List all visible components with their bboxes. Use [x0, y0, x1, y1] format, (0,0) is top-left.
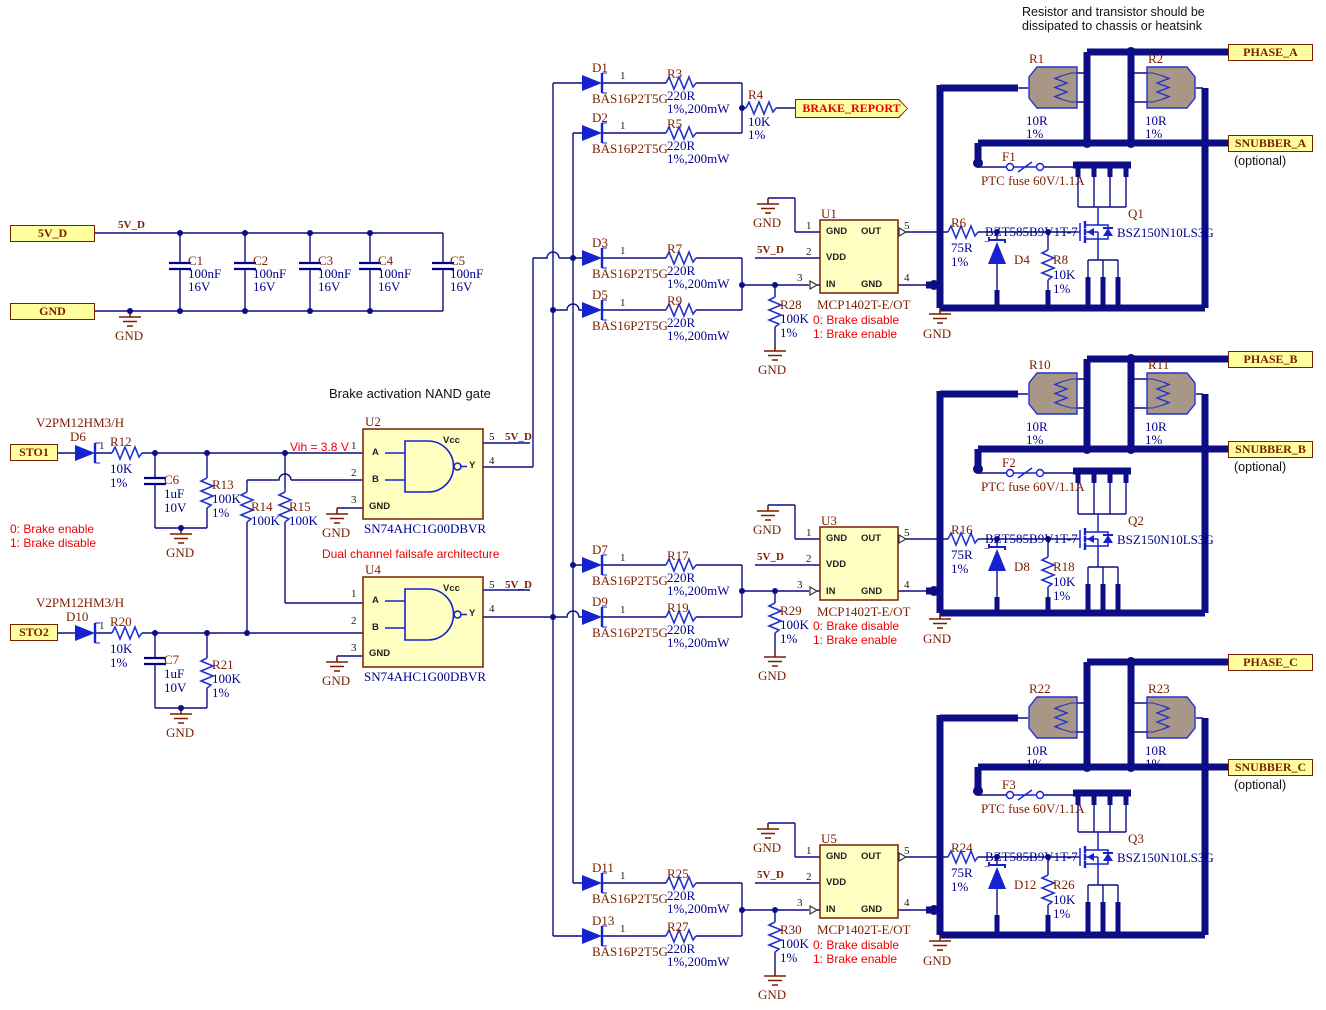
- vih-annotation: Vih = 3.8 V: [290, 440, 349, 454]
- U2-num5: 5: [489, 431, 495, 443]
- U1-pinGND1: GND: [826, 226, 847, 237]
- U3-num3: 3: [797, 579, 803, 591]
- junction-dot: [367, 230, 373, 236]
- R6-tol: 1%: [951, 254, 968, 270]
- junction-dot: [152, 450, 158, 456]
- U1-num3: 3: [797, 272, 803, 284]
- bus-junction-blob: [1082, 762, 1092, 772]
- mosfet-icon: [1074, 207, 1113, 257]
- bus-junction-blob: [973, 464, 983, 474]
- gnd-text-u2: GND: [322, 525, 350, 541]
- D8-part: BZT585B9V1T-7: [985, 531, 1078, 547]
- D9-pin1: 1: [620, 604, 626, 616]
- U4-num4: 4: [489, 603, 495, 615]
- bus-junction-blob: [1082, 138, 1092, 148]
- D1-pin1: 1: [620, 70, 626, 82]
- junction-dot: [178, 525, 184, 531]
- R18-tol: 1%: [1053, 588, 1070, 604]
- U2-num4: 4: [489, 455, 495, 467]
- U4-pinGND: GND: [369, 648, 390, 659]
- R16-tol: 1%: [951, 561, 968, 577]
- R24: R24: [951, 840, 973, 856]
- R8-tol: 1%: [1053, 281, 1070, 297]
- D11-part: BAS16P2T5G: [592, 891, 668, 907]
- D11: D11: [592, 860, 614, 876]
- port-phase-a: PHASE_A: [1228, 44, 1313, 61]
- U4-part: SN74AHC1G00DBVR: [364, 669, 486, 685]
- D12-minus: −: [984, 861, 990, 873]
- R30-tol: 1%: [780, 950, 797, 966]
- U3-num5: 5: [904, 527, 910, 539]
- nand-title: Brake activation NAND gate: [329, 386, 491, 401]
- D6-pin1: 1: [99, 440, 105, 452]
- net-5vd-u4: 5V_D: [505, 579, 532, 591]
- bus-junction-blob: [1126, 444, 1136, 454]
- D1: D1: [592, 60, 608, 76]
- gnd-text-r28: GND: [758, 362, 786, 378]
- brake-note-1: 1: Brake disable: [10, 536, 96, 550]
- bus-junction-blob: [1082, 444, 1092, 454]
- bus-junction-blob: [1126, 47, 1136, 57]
- Q2: Q2: [1128, 513, 1144, 529]
- R27-power: 1%,200mW: [667, 954, 729, 970]
- F2: F2: [1002, 455, 1016, 471]
- R21-tol: 1%: [212, 685, 229, 701]
- C1-voltage: 16V: [188, 279, 210, 295]
- R28-tol: 1%: [780, 325, 797, 341]
- junction-dot: [772, 282, 778, 288]
- R20-tol: 1%: [110, 655, 127, 671]
- net-5vd-u1: 5V_D: [757, 244, 784, 256]
- R13-tol: 1%: [212, 505, 229, 521]
- D1-part: BAS16P2T5G: [592, 91, 668, 107]
- arrow-icon: [810, 587, 817, 595]
- U4-pinVcc: Vcc: [443, 583, 460, 594]
- D3-part: BAS16P2T5G: [592, 266, 668, 282]
- gnd-icon: [764, 651, 786, 666]
- R22: R22: [1029, 681, 1051, 697]
- U2-num2: 2: [351, 467, 357, 479]
- F2-part: PTC fuse 60V/1.1A: [981, 479, 1085, 495]
- U4-num3: 3: [351, 642, 357, 654]
- U5-num2: 2: [806, 871, 812, 883]
- R17: R17: [667, 548, 689, 564]
- R24-tol: 1%: [951, 879, 968, 895]
- bus-junction-blob: [1200, 762, 1210, 772]
- junction-dot: [739, 105, 745, 111]
- port-brake-report: BRAKE_REPORT: [795, 99, 908, 118]
- U3-num2: 2: [806, 553, 812, 565]
- C7-voltage: 10V: [164, 680, 186, 696]
- powres-icon: [1029, 373, 1077, 414]
- C4-voltage: 16V: [378, 279, 400, 295]
- junction-dot: [739, 588, 745, 594]
- brake-disable-a0: 0: Brake disable: [813, 313, 899, 327]
- port-sto1: STO1: [10, 444, 58, 461]
- junction-dot: [739, 282, 745, 288]
- R4: R4: [748, 87, 763, 103]
- zener-icon: [988, 544, 1006, 571]
- powres-icon: [1147, 373, 1195, 414]
- junction-dot: [307, 230, 313, 236]
- gnd-text-c7: GND: [166, 725, 194, 741]
- junction-dot: [307, 308, 313, 314]
- R5-power: 1%,200mW: [667, 151, 729, 167]
- R12: R12: [110, 434, 132, 450]
- zener-icon: [988, 862, 1006, 889]
- U2-pinY: Y: [469, 460, 475, 471]
- D12-part: BZT585B9V1T-7: [985, 849, 1078, 865]
- gnd-text-r30: GND: [758, 987, 786, 1003]
- gnd-text-u4: GND: [322, 673, 350, 689]
- F3: F3: [1002, 777, 1016, 793]
- gnd-text-busb: GND: [923, 631, 951, 647]
- mosfet-icon: [1074, 832, 1113, 882]
- U2-pinA: A: [372, 447, 379, 458]
- R11: R11: [1148, 357, 1169, 373]
- U1-part: MCP1402T-E/OT: [817, 297, 910, 313]
- U2-pinVcc: Vcc: [443, 435, 460, 446]
- D2-pin1: 1: [620, 120, 626, 132]
- gnd-text-u5pin1: GND: [753, 840, 781, 856]
- bus-junction-blob: [1126, 354, 1136, 364]
- R2: R2: [1148, 51, 1163, 67]
- D10-pin1: 1: [99, 620, 105, 632]
- R2-tol: 1%: [1145, 126, 1162, 142]
- U3-part: MCP1402T-E/OT: [817, 604, 910, 620]
- junction-dot: [242, 230, 248, 236]
- cap-icon: [144, 478, 166, 484]
- R26: R26: [1053, 877, 1075, 893]
- brake-disable-c0: 0: Brake disable: [813, 938, 899, 952]
- bus-junction-blob: [1126, 762, 1136, 772]
- D7-pin1: 1: [620, 552, 626, 564]
- D3-pin1: 1: [620, 245, 626, 257]
- port-snubber-b: SNUBBER_B: [1228, 441, 1313, 458]
- powres-icon: [1147, 67, 1195, 108]
- C3-voltage: 16V: [318, 279, 340, 295]
- junction-dot: [772, 907, 778, 913]
- net-5vd-u3: 5V_D: [757, 551, 784, 563]
- R25-power: 1%,200mW: [667, 901, 729, 917]
- U1-num2: 2: [806, 246, 812, 258]
- R9-power: 1%,200mW: [667, 328, 729, 344]
- R17-power: 1%,200mW: [667, 583, 729, 599]
- U5-num4: 4: [904, 897, 910, 909]
- brake-disable-b0: 0: Brake disable: [813, 619, 899, 633]
- R3-power: 1%,200mW: [667, 101, 729, 117]
- U3-num1: 1: [806, 527, 812, 539]
- F1: F1: [1002, 149, 1016, 165]
- R5: R5: [667, 116, 682, 132]
- gnd-icon: [757, 505, 779, 520]
- optional-a: (optional): [1234, 154, 1286, 168]
- R23-tol: 1%: [1145, 756, 1162, 772]
- U1-num1: 1: [806, 220, 812, 232]
- junction-dot: [570, 562, 576, 568]
- R26-tol: 1%: [1053, 906, 1070, 922]
- gnd-text-busc: GND: [923, 953, 951, 969]
- signal-wires: [58, 73, 1203, 970]
- U2-num1: 1: [351, 440, 357, 452]
- U3-pinOUT: OUT: [861, 533, 881, 544]
- gnd-icon: [764, 970, 786, 985]
- powres-icon: [1029, 697, 1077, 738]
- zener-icon: [988, 237, 1006, 264]
- U1-pinOUT: OUT: [861, 226, 881, 237]
- mosfet-icon: [1074, 514, 1113, 564]
- net-5vd-u5: 5V_D: [757, 869, 784, 881]
- U1-num5: 5: [904, 220, 910, 232]
- bus-junction-blob: [1200, 444, 1210, 454]
- R8: R8: [1053, 252, 1068, 268]
- note-line1: Resistor and transistor should be: [1022, 5, 1205, 19]
- powres-icon: [1147, 697, 1195, 738]
- brake-disable-a1: 1: Brake enable: [813, 327, 897, 341]
- bus-junction-blob: [1200, 138, 1210, 148]
- gnd-text-c6: GND: [166, 545, 194, 561]
- D13-part: BAS16P2T5G: [592, 944, 668, 960]
- arrow-icon: [810, 281, 817, 289]
- R14-value: 100K: [251, 513, 280, 529]
- junction-dot: [367, 308, 373, 314]
- bus-junction-blob: [973, 158, 983, 168]
- U3-num4: 4: [904, 579, 910, 591]
- junction-dot: [244, 630, 250, 636]
- U1-pinIN: IN: [826, 279, 836, 290]
- R9: R9: [667, 293, 682, 309]
- U4-num5: 5: [489, 579, 495, 591]
- D11-pin1: 1: [620, 870, 626, 882]
- R1-tol: 1%: [1026, 126, 1043, 142]
- U3-pinIN: IN: [826, 586, 836, 597]
- R23: R23: [1148, 681, 1170, 697]
- U2-pinB: B: [372, 474, 379, 485]
- optional-c: (optional): [1234, 778, 1286, 792]
- R18: R18: [1053, 559, 1075, 575]
- U5-part: MCP1402T-E/OT: [817, 922, 910, 938]
- gnd-text-u3pin1: GND: [753, 522, 781, 538]
- bus-junction-blob: [929, 280, 939, 290]
- U4-pinY: Y: [469, 608, 475, 619]
- port-phase-b: PHASE_B: [1228, 351, 1313, 368]
- bus-junction-blob: [929, 905, 939, 915]
- U4-num2: 2: [351, 615, 357, 627]
- U5-num3: 3: [797, 897, 803, 909]
- D5-pin1: 1: [620, 297, 626, 309]
- U2-pinGND: GND: [369, 501, 390, 512]
- U2-num3: 3: [351, 494, 357, 506]
- D12: D12: [1014, 877, 1036, 893]
- port-gnd: GND: [10, 303, 95, 320]
- junction-dot: [282, 450, 288, 456]
- bus-junction-blob: [929, 586, 939, 596]
- U2: U2: [365, 414, 381, 430]
- junction-dot: [550, 614, 556, 620]
- U3: U3: [821, 513, 837, 529]
- junction-dot: [550, 307, 556, 313]
- D9-part: BAS16P2T5G: [592, 625, 668, 641]
- junction-dot: [242, 308, 248, 314]
- U5-pinVDD: VDD: [826, 877, 846, 888]
- port-sto2: STO2: [10, 624, 58, 641]
- U5-num5: 5: [904, 845, 910, 857]
- R16: R16: [951, 522, 973, 538]
- junction-dot: [772, 588, 778, 594]
- D5: D5: [592, 287, 608, 303]
- junction-dot: [204, 630, 210, 636]
- D13: D13: [592, 913, 614, 929]
- R11-tol: 1%: [1145, 432, 1162, 448]
- R19: R19: [667, 600, 689, 616]
- D10: D10: [66, 609, 88, 625]
- R27: R27: [667, 919, 689, 935]
- U5-num1: 1: [806, 845, 812, 857]
- junction-dot: [570, 255, 576, 261]
- gnd-icon: [326, 656, 348, 671]
- D4-part: BZT585B9V1T-7: [985, 224, 1078, 240]
- U1: U1: [821, 206, 837, 222]
- D2: D2: [592, 110, 608, 126]
- R10: R10: [1029, 357, 1051, 373]
- U3-pinGND1: GND: [826, 533, 847, 544]
- brake-disable-c1: 1: Brake enable: [813, 952, 897, 966]
- U4-pinA: A: [372, 595, 379, 606]
- U5-pinGND1: GND: [826, 851, 847, 862]
- junction-dot: [152, 630, 158, 636]
- net-5vd-rail: 5V_D: [118, 219, 145, 231]
- U3-pinVDD: VDD: [826, 559, 846, 570]
- U1-pinGND4: GND: [861, 279, 882, 290]
- D9: D9: [592, 594, 608, 610]
- Q1-part: BSZ150N10LS3G: [1117, 225, 1214, 241]
- U5-pinIN: IN: [826, 904, 836, 915]
- port-snubber-c: SNUBBER_C: [1228, 759, 1313, 776]
- D6: D6: [70, 429, 86, 445]
- D4: D4: [1014, 252, 1030, 268]
- junction-dot: [127, 308, 133, 314]
- U5-pinOUT: OUT: [861, 851, 881, 862]
- D4-minus: −: [984, 236, 990, 248]
- D3: D3: [592, 235, 608, 251]
- U1-pinVDD: VDD: [826, 252, 846, 263]
- D8: D8: [1014, 559, 1030, 575]
- gnd-icon: [757, 823, 779, 838]
- gnd-text-busa: GND: [923, 326, 951, 342]
- R1: R1: [1029, 51, 1044, 67]
- R6: R6: [951, 215, 966, 231]
- U5-pinGND4: GND: [861, 904, 882, 915]
- gnd-icon: [757, 198, 779, 213]
- gnd-text-rail: GND: [115, 328, 143, 344]
- U4-num1: 1: [351, 588, 357, 600]
- D13-pin1: 1: [620, 923, 626, 935]
- U5: U5: [821, 831, 837, 847]
- failsafe-annotation: Dual channel failsafe architecture: [322, 547, 499, 561]
- brake-note-0: 0: Brake enable: [10, 522, 94, 536]
- bus-junction-blob: [1126, 657, 1136, 667]
- bus-junction-blob: [973, 786, 983, 796]
- port-5v-d: 5V_D: [10, 225, 95, 242]
- D7-part: BAS16P2T5G: [592, 573, 668, 589]
- F3-part: PTC fuse 60V/1.1A: [981, 801, 1085, 817]
- gnd-text-u1pin1: GND: [753, 215, 781, 231]
- cap-icon: [144, 658, 166, 664]
- R3: R3: [667, 66, 682, 82]
- R15-value: 100K: [289, 513, 318, 529]
- arrow-icon: [810, 906, 817, 914]
- C6-voltage: 10V: [164, 500, 186, 516]
- R7-power: 1%,200mW: [667, 276, 729, 292]
- R12-tol: 1%: [110, 475, 127, 491]
- D2-part: BAS16P2T5G: [592, 141, 668, 157]
- Q3-part: BSZ150N10LS3G: [1117, 850, 1214, 866]
- optional-b: (optional): [1234, 460, 1286, 474]
- port-snubber-a: SNUBBER_A: [1228, 135, 1313, 152]
- schematic-canvas: Resistor and transistor should bedissipa…: [0, 0, 1326, 1010]
- R29-tol: 1%: [780, 631, 797, 647]
- powres-icon: [1029, 67, 1077, 108]
- junction-dot: [178, 705, 184, 711]
- brake-disable-b1: 1: Brake enable: [813, 633, 897, 647]
- port-brake-report-label: BRAKE_REPORT: [796, 100, 907, 117]
- junction-dot: [739, 907, 745, 913]
- R19-power: 1%,200mW: [667, 635, 729, 651]
- D7: D7: [592, 542, 608, 558]
- U1-num4: 4: [904, 272, 910, 284]
- net-5vd-u2: 5V_D: [505, 431, 532, 443]
- R4-tol: 1%: [748, 127, 765, 143]
- C2-voltage: 16V: [253, 279, 275, 295]
- Q1: Q1: [1128, 206, 1144, 222]
- R10-tol: 1%: [1026, 432, 1043, 448]
- note-line2: dissipated to chassis or heatsink: [1022, 19, 1202, 33]
- F1-part: PTC fuse 60V/1.1A: [981, 173, 1085, 189]
- R25: R25: [667, 866, 689, 882]
- port-phase-c: PHASE_C: [1228, 654, 1313, 671]
- R22-tol: 1%: [1026, 756, 1043, 772]
- Q3: Q3: [1128, 831, 1144, 847]
- junction-dot: [177, 308, 183, 314]
- Q2-part: BSZ150N10LS3G: [1117, 532, 1214, 548]
- resh-icon: [746, 102, 776, 114]
- D5-part: BAS16P2T5G: [592, 318, 668, 334]
- R20: R20: [110, 614, 132, 630]
- R7: R7: [667, 241, 682, 257]
- gnd-icon: [326, 508, 348, 523]
- gnd-text-r29: GND: [758, 668, 786, 684]
- gnd-icon: [764, 345, 786, 360]
- U4: U4: [365, 562, 381, 578]
- U2-part: SN74AHC1G00DBVR: [364, 521, 486, 537]
- junction-dot: [204, 450, 210, 456]
- U3-pinGND4: GND: [861, 586, 882, 597]
- U4-pinB: B: [372, 622, 379, 633]
- D8-minus: −: [984, 543, 990, 555]
- C5-voltage: 16V: [450, 279, 472, 295]
- bus-junction-blob: [1126, 138, 1136, 148]
- junction-dot: [177, 230, 183, 236]
